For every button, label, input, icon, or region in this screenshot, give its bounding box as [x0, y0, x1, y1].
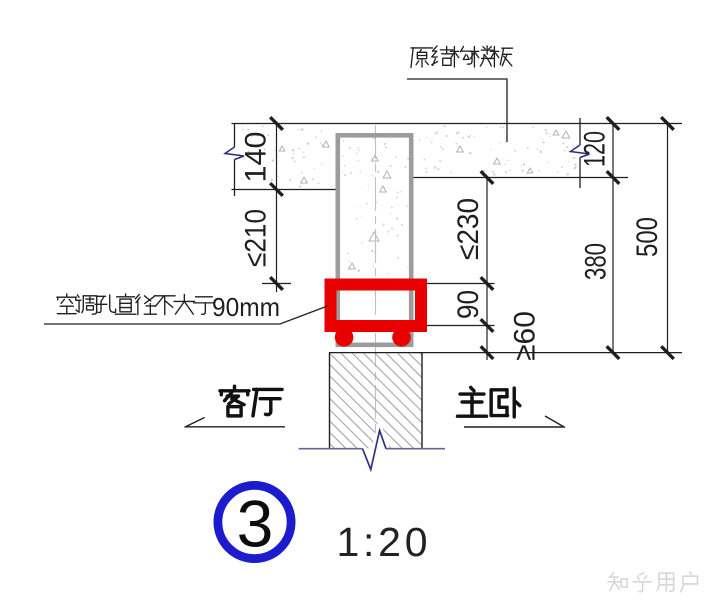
svg-text:140: 140 — [240, 132, 273, 183]
svg-text:≤230: ≤230 — [452, 198, 485, 260]
svg-text:90: 90 — [452, 290, 485, 319]
svg-text:≥60: ≥60 — [509, 311, 542, 361]
svg-text:380: 380 — [580, 243, 613, 280]
svg-text:≤210: ≤210 — [240, 209, 273, 267]
svg-text:1:20: 1:20 — [337, 519, 428, 565]
svg-text:3: 3 — [237, 487, 274, 561]
svg-text:90mm: 90mm — [212, 292, 280, 322]
svg-text:500: 500 — [631, 217, 664, 257]
svg-text:120: 120 — [579, 131, 612, 167]
